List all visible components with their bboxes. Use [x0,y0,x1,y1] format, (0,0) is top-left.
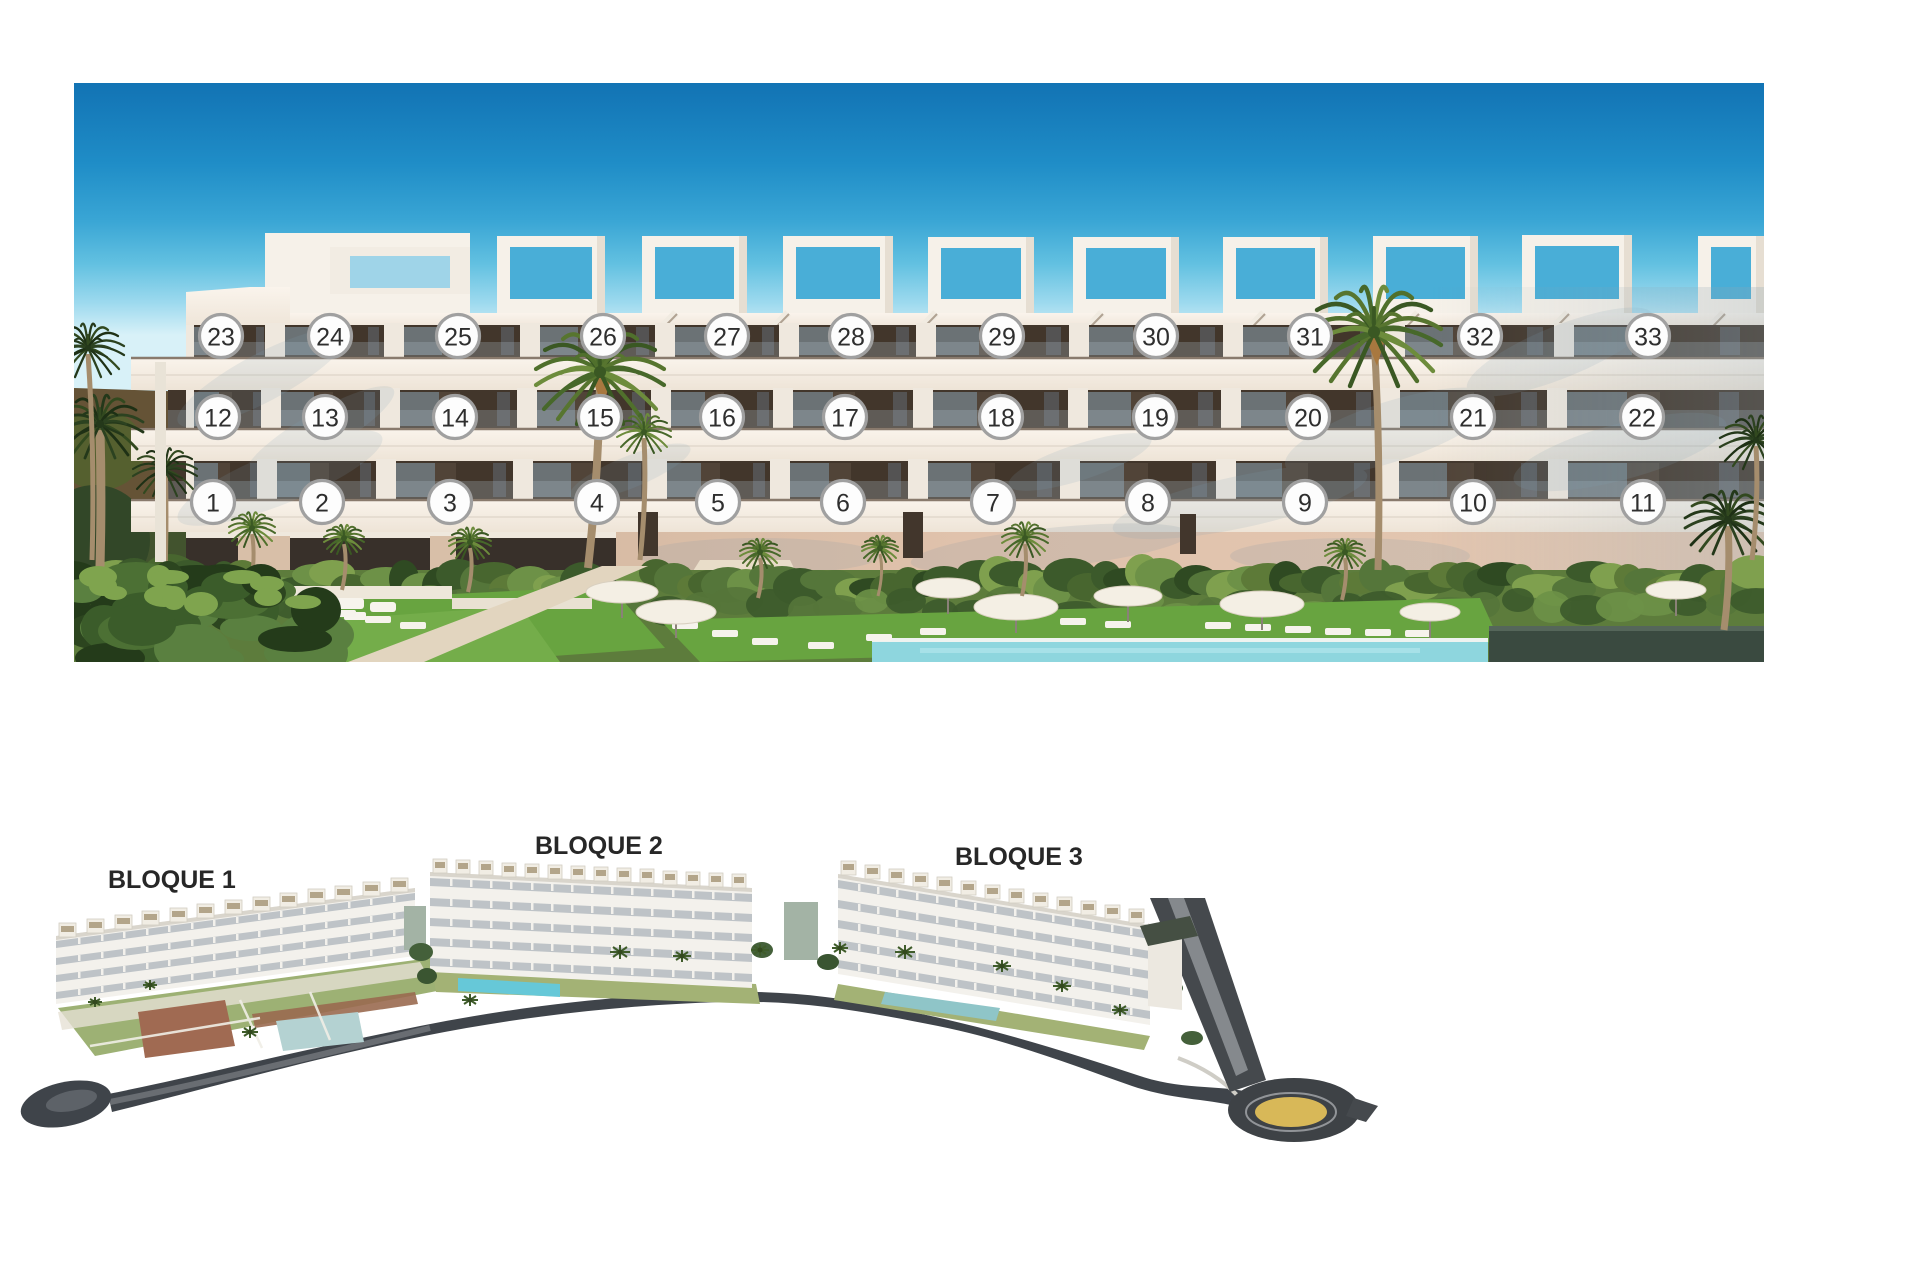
svg-text:20: 20 [1294,405,1322,433]
svg-text:19: 19 [1141,405,1169,433]
svg-text:9: 9 [1298,490,1312,518]
svg-text:3: 3 [443,490,457,518]
svg-text:14: 14 [441,405,469,433]
svg-text:8: 8 [1141,490,1155,518]
svg-text:25: 25 [444,324,472,352]
svg-text:12: 12 [204,405,232,433]
svg-text:18: 18 [987,405,1015,433]
svg-text:22: 22 [1628,405,1656,433]
svg-text:33: 33 [1634,324,1662,352]
svg-text:5: 5 [711,490,725,518]
svg-text:BLOQUE 3: BLOQUE 3 [955,843,1083,871]
svg-text:24: 24 [316,324,344,352]
svg-text:1: 1 [206,490,220,518]
svg-text:13: 13 [311,405,339,433]
svg-text:15: 15 [586,405,614,433]
svg-text:BLOQUE 2: BLOQUE 2 [535,832,663,860]
svg-text:31: 31 [1296,324,1324,352]
svg-text:26: 26 [589,324,617,352]
svg-text:4: 4 [590,490,604,518]
svg-text:6: 6 [836,490,850,518]
svg-text:23: 23 [207,324,235,352]
svg-text:11: 11 [1630,490,1656,518]
svg-text:29: 29 [988,324,1016,352]
svg-text:16: 16 [708,405,736,433]
svg-text:21: 21 [1459,405,1487,433]
svg-text:10: 10 [1459,490,1487,518]
svg-text:7: 7 [986,490,1000,518]
svg-text:28: 28 [837,324,865,352]
svg-text:30: 30 [1142,324,1170,352]
svg-text:BLOQUE 1: BLOQUE 1 [108,866,236,894]
svg-text:27: 27 [713,324,741,352]
svg-text:2: 2 [315,490,329,518]
svg-text:32: 32 [1466,324,1494,352]
svg-text:17: 17 [831,405,859,433]
